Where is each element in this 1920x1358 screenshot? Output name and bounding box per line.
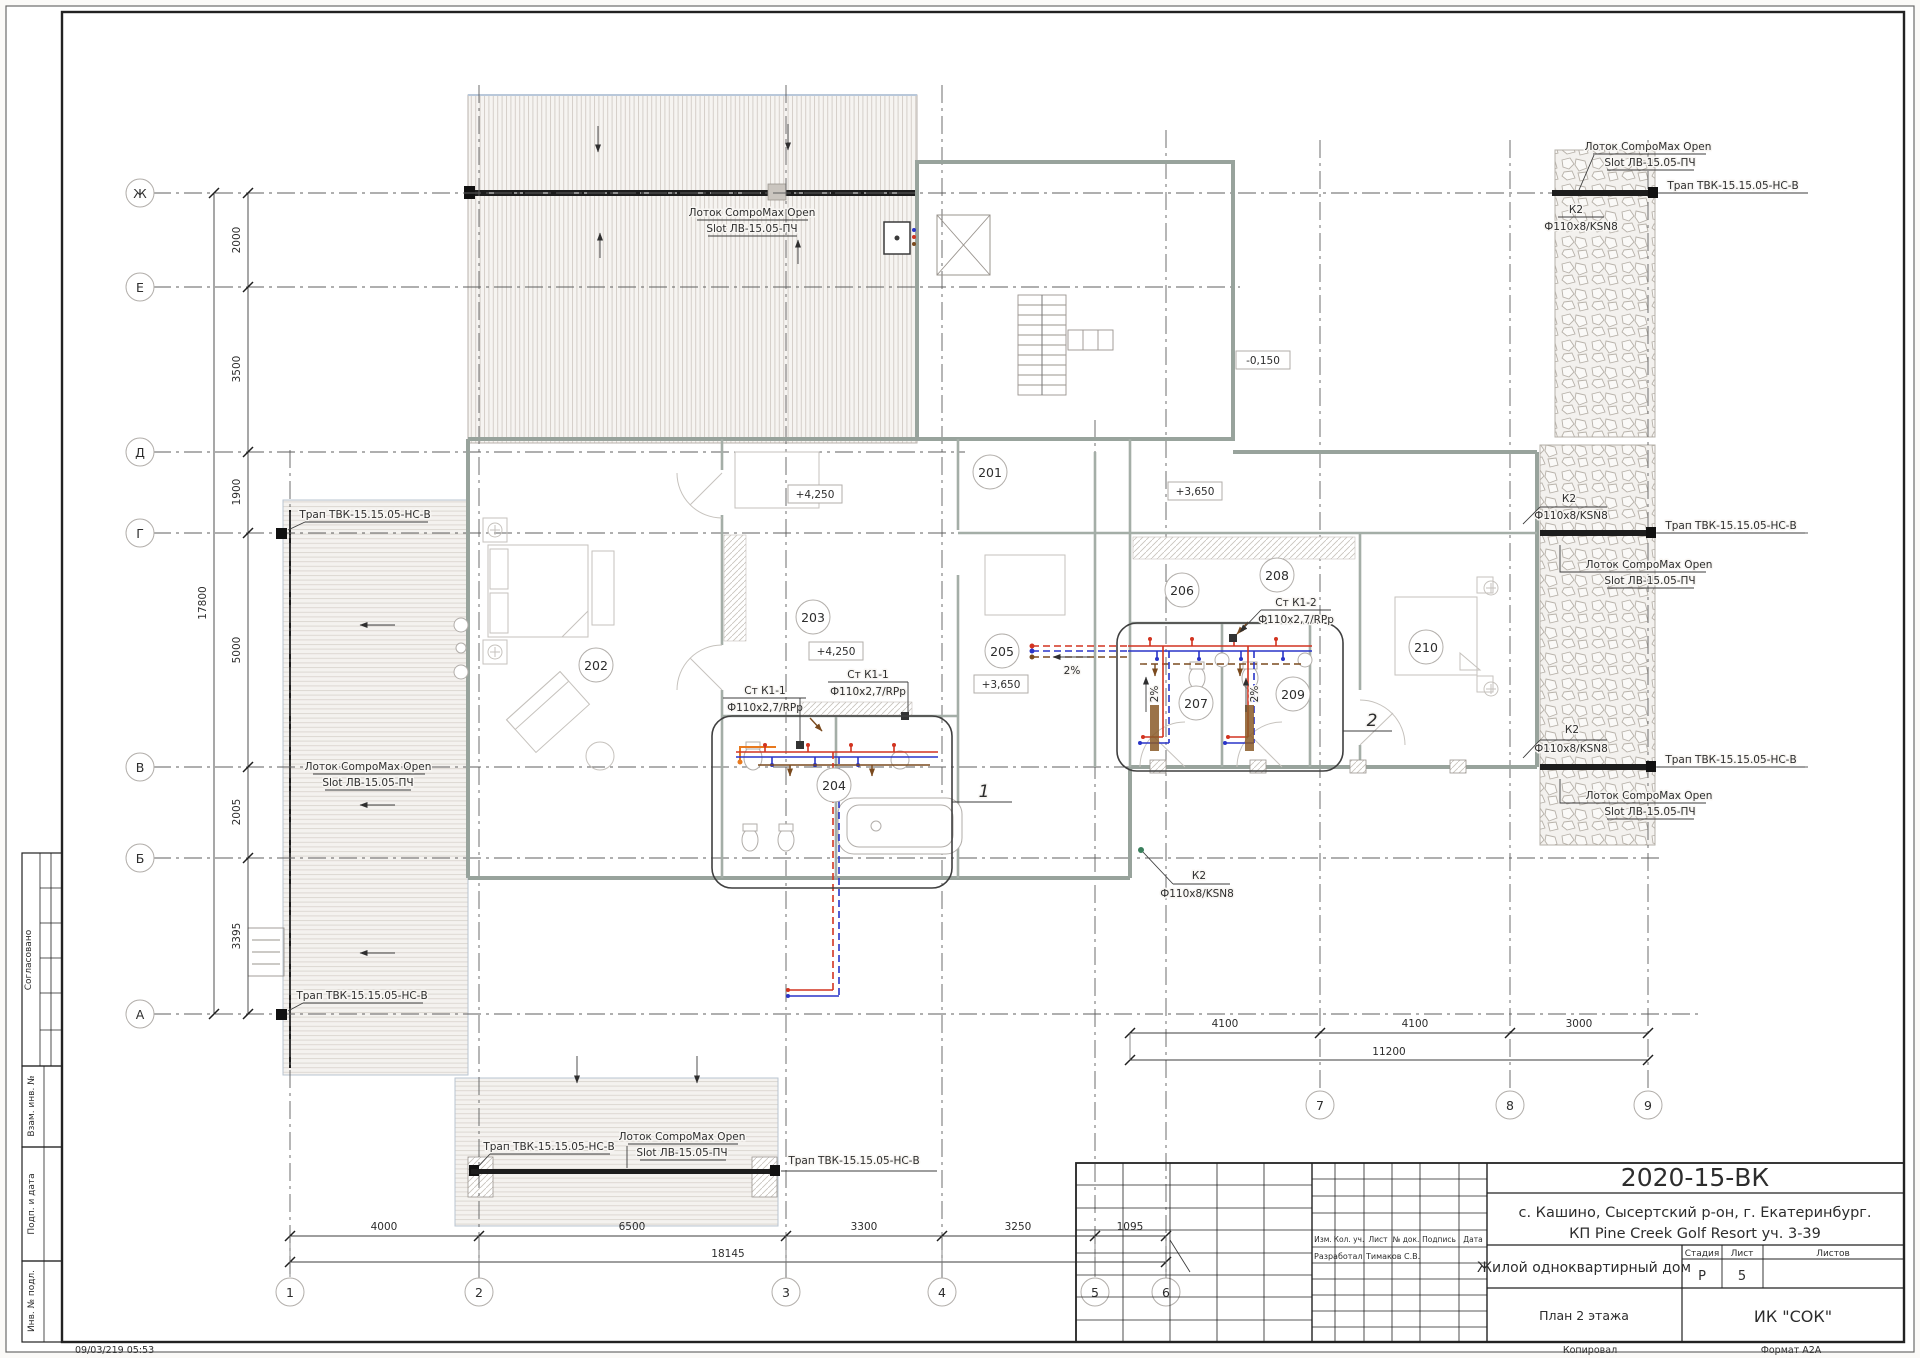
stamp-agreed: Согласовано [24,929,34,990]
elevation-value: -0,150 [1246,355,1280,367]
dim-value: 2000 [231,227,243,254]
slope-label: 2% [1149,686,1161,703]
gutter-label: Лоток CompoMax Open [305,761,432,773]
dim-value: 1095 [1117,1221,1144,1233]
room-number: 210 [1414,640,1438,655]
dim-value: 6500 [619,1221,646,1233]
dim-total: 18145 [711,1248,744,1260]
gutter-label: Slot ЛВ-15.05-ПЧ [706,223,797,235]
tb-col-list: Лист [1368,1235,1388,1244]
axis-col: 5 [1091,1285,1099,1300]
tb-object-name: Жилой одноквартирный дом [1477,1260,1691,1276]
elevation-value: +3,650 [1176,486,1215,498]
footer-format: Формат А2А [1761,1345,1822,1356]
dim-value: 3000 [1566,1018,1593,1030]
stack-label: Ст К1-2 [1275,597,1316,609]
room-number: 205 [990,644,1014,659]
gutter-label: Slot ЛВ-15.05-ПЧ [1604,575,1695,587]
axis-col: 3 [782,1285,790,1300]
axis-col: 9 [1644,1098,1652,1113]
axis-row: В [136,760,145,775]
dim-value: 4100 [1402,1018,1429,1030]
callout-1-number: 1 [979,782,990,802]
gutter-label: Лоток CompoMax Open [689,207,816,219]
stack-label: Ст К1-1 [847,669,888,681]
k2-label: К2 [1192,870,1206,882]
room-number: 208 [1265,568,1289,583]
roof-block [464,95,917,443]
drain-label: Трап ТВК-15.15.05-НС-В [1664,520,1796,532]
room-number: 203 [801,610,825,625]
axis-row: Е [136,280,144,295]
gutter-label: Slot ЛВ-15.05-ПЧ [1604,157,1695,169]
dim-total: 17800 [197,586,209,619]
stack-label: Ст К1-1 [744,685,785,697]
drawing-sheet: 2% 2% 2% 1 2 Лоток CompoMax Open Slot ЛВ… [0,0,1920,1358]
room-number: 202 [584,658,608,673]
room-number: 209 [1281,687,1305,702]
dim-value: 1900 [231,479,243,506]
tb-col-date: Дата [1463,1235,1482,1244]
gutter-label: Лоток CompoMax Open [619,1131,746,1143]
dim-value: 2005 [231,799,243,826]
tb-developed-label: Разработал [1314,1252,1362,1261]
axis-col: 1 [286,1285,294,1300]
elevation-value: +4,250 [817,646,856,658]
tb-col-izm: Изм. [1314,1235,1332,1244]
dim-value: 4100 [1212,1018,1239,1030]
drain-label: Трап ТВК-15.15.05-НС-В [1664,754,1796,766]
gutter-label: Slot ЛВ-15.05-ПЧ [1604,806,1695,818]
tb-sheet-label: Лист [1731,1249,1754,1259]
drain-label: Трап ТВК-15.15.05-НС-В [787,1155,919,1167]
k2-label: К2 [1569,204,1583,216]
tb-col-sign: Подпись [1422,1235,1456,1244]
axis-row: Г [136,526,144,541]
tb-col-kol: Кол. уч. [1334,1235,1365,1244]
axis-col: 8 [1506,1098,1514,1113]
k2-pipe-label: Ф110х8/KSN8 [1544,221,1618,233]
tb-company: ИК "СОК" [1754,1307,1832,1326]
footer-copied: Копировал [1563,1345,1617,1356]
footer-timestamp: 09/03/219 05:53 [75,1345,154,1356]
room-number: 207 [1184,696,1208,711]
elevation-value: +3,650 [982,679,1021,691]
k2-pipe-label: Ф110х8/KSN8 [1534,510,1608,522]
stack-pipe-label: Ф110х2,7/RPp [830,686,906,698]
gutter-label: Slot ЛВ-15.05-ПЧ [322,777,413,789]
plan-canvas: 2% 2% 2% 1 2 Лоток CompoMax Open Slot ЛВ… [0,0,1920,1358]
gutter-label: Лоток CompoMax Open [1586,790,1713,802]
dim-total: 11200 [1372,1046,1405,1058]
tb-sheets-label: Листов [1816,1249,1850,1259]
gutter-label: Лоток CompoMax Open [1585,141,1712,153]
axis-col: 7 [1316,1098,1324,1113]
dim-value: 3395 [231,923,243,950]
tb-sheet-value: 5 [1738,1269,1746,1284]
stack-pipe-label: Ф110х2,7/RPp [1258,614,1334,626]
k2-pipe-label: Ф110х8/KSN8 [1534,743,1608,755]
stone-terrace-mid [1540,445,1655,845]
dim-value: 5000 [231,637,243,664]
stamp-vzam: Взам. инв. № [27,1075,37,1136]
stamp-podp: Подп. и дата [27,1173,37,1234]
axis-col: 2 [475,1285,483,1300]
room-number: 206 [1170,583,1194,598]
k2-label: К2 [1565,724,1579,736]
k2-label: К2 [1562,493,1576,505]
dim-value: 3500 [231,356,243,383]
tb-stage-label: Стадия [1685,1249,1720,1259]
gutter-label: Лоток CompoMax Open [1586,559,1713,571]
tb-col-doc: № док. [1393,1235,1420,1244]
drain-label: Трап ТВК-15.15.05-НС-В [295,990,427,1002]
slope-label: 2% [1249,686,1261,703]
tb-developed-by: Тимаков С.В. [1365,1252,1420,1261]
axis-col: 4 [938,1285,946,1300]
k2-pipe-label: Ф110х8/KSN8 [1160,888,1234,900]
dim-value: 3300 [851,1221,878,1233]
tb-sheet-title: План 2 этажа [1539,1308,1629,1323]
room-number: 201 [978,465,1002,480]
axis-col: 6 [1162,1285,1170,1300]
stack-pipe-label: Ф110х2,7/RPp [727,702,803,714]
stamp-inv: Инв. № подл. [27,1270,37,1332]
tb-doc-number: 2020-15-ВК [1621,1163,1770,1192]
callout-2-number: 2 [1367,711,1378,731]
drain-label: Трап ТВК-15.15.05-НС-В [1666,180,1798,192]
elevation-value: +4,250 [796,489,835,501]
tb-stage-value: Р [1698,1269,1706,1284]
drain-label: Трап ТВК-15.15.05-НС-В [298,509,430,521]
dim-value: 4000 [371,1221,398,1233]
axis-row: Д [135,445,145,460]
slope-label: 2% [1064,665,1081,677]
drain-label: Трап ТВК-15.15.05-НС-В [482,1141,614,1153]
gutter-label: Slot ЛВ-15.05-ПЧ [636,1147,727,1159]
tb-location-1: с. Кашино, Сысертский р-он, г. Екатеринб… [1518,1205,1871,1221]
tb-location-2: КП Pine Creek Golf Resort уч. 3-39 [1569,1226,1821,1242]
room-number: 204 [822,778,846,793]
axis-row: А [136,1007,145,1022]
axis-row: Ж [133,186,147,201]
axis-row: Б [136,851,145,866]
dim-value: 3250 [1005,1221,1032,1233]
